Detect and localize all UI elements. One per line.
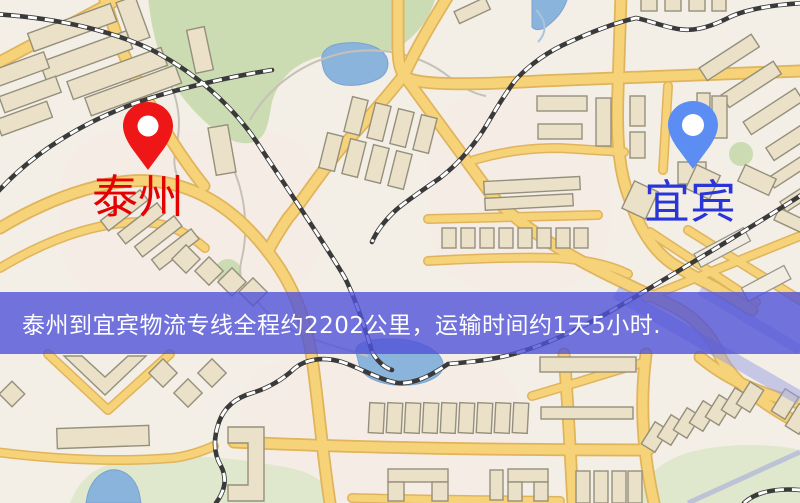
building <box>386 403 403 434</box>
lake <box>322 43 388 86</box>
building <box>490 470 503 500</box>
map-canvas[interactable]: 泰州 宜宾 <box>0 0 800 503</box>
building <box>461 228 475 248</box>
building <box>440 403 457 434</box>
yibin-pin-dot <box>682 114 704 136</box>
building <box>404 403 421 434</box>
marker-label-yibin: 宜宾 <box>644 175 736 229</box>
map-screenshot: 泰州 宜宾 泰州到宜宾物流专线全程约2202公里，运输时间约1天5小时. <box>0 0 800 503</box>
building <box>641 0 657 11</box>
building <box>574 228 588 248</box>
building <box>494 403 511 434</box>
building <box>594 471 608 503</box>
taizhou-pin-dot <box>138 116 159 137</box>
building <box>499 228 513 248</box>
building <box>537 96 587 111</box>
building <box>766 116 800 160</box>
park-small <box>729 142 753 166</box>
building <box>596 98 611 146</box>
building <box>368 403 385 434</box>
building <box>612 471 626 503</box>
building <box>538 124 582 139</box>
building <box>537 228 551 248</box>
building <box>630 96 645 126</box>
building <box>422 403 439 434</box>
building <box>57 425 150 448</box>
building <box>743 88 800 134</box>
building <box>198 359 226 387</box>
park-pale-bottom-right <box>636 445 800 503</box>
water-top-right <box>532 0 568 30</box>
building <box>576 471 590 503</box>
route-info-banner: 泰州到宜宾物流专线全程约2202公里，运输时间约1天5小时. <box>0 292 800 354</box>
building <box>319 133 343 172</box>
building <box>480 228 494 248</box>
pin-yibin[interactable] <box>668 101 718 169</box>
building <box>476 403 493 434</box>
building <box>508 482 522 501</box>
building <box>0 381 25 406</box>
building <box>541 407 633 419</box>
building <box>512 403 529 434</box>
building <box>365 145 389 184</box>
building <box>390 109 414 148</box>
building <box>738 165 776 196</box>
building <box>388 469 448 482</box>
building <box>630 132 645 158</box>
building <box>628 471 642 503</box>
building <box>689 0 705 11</box>
building <box>442 228 456 248</box>
building <box>458 403 475 434</box>
building <box>432 482 448 501</box>
building <box>388 151 412 190</box>
route-info-text: 泰州到宜宾物流专线全程约2202公里，运输时间约1天5小时. <box>0 306 661 340</box>
building <box>518 228 532 248</box>
building <box>388 482 404 501</box>
building <box>174 379 202 407</box>
building <box>665 0 681 11</box>
building <box>454 0 490 24</box>
building <box>540 357 636 372</box>
building <box>508 469 548 482</box>
marker-label-taizhou: 泰州 <box>92 170 184 224</box>
building <box>712 0 726 11</box>
building <box>534 482 548 501</box>
building <box>556 228 570 248</box>
